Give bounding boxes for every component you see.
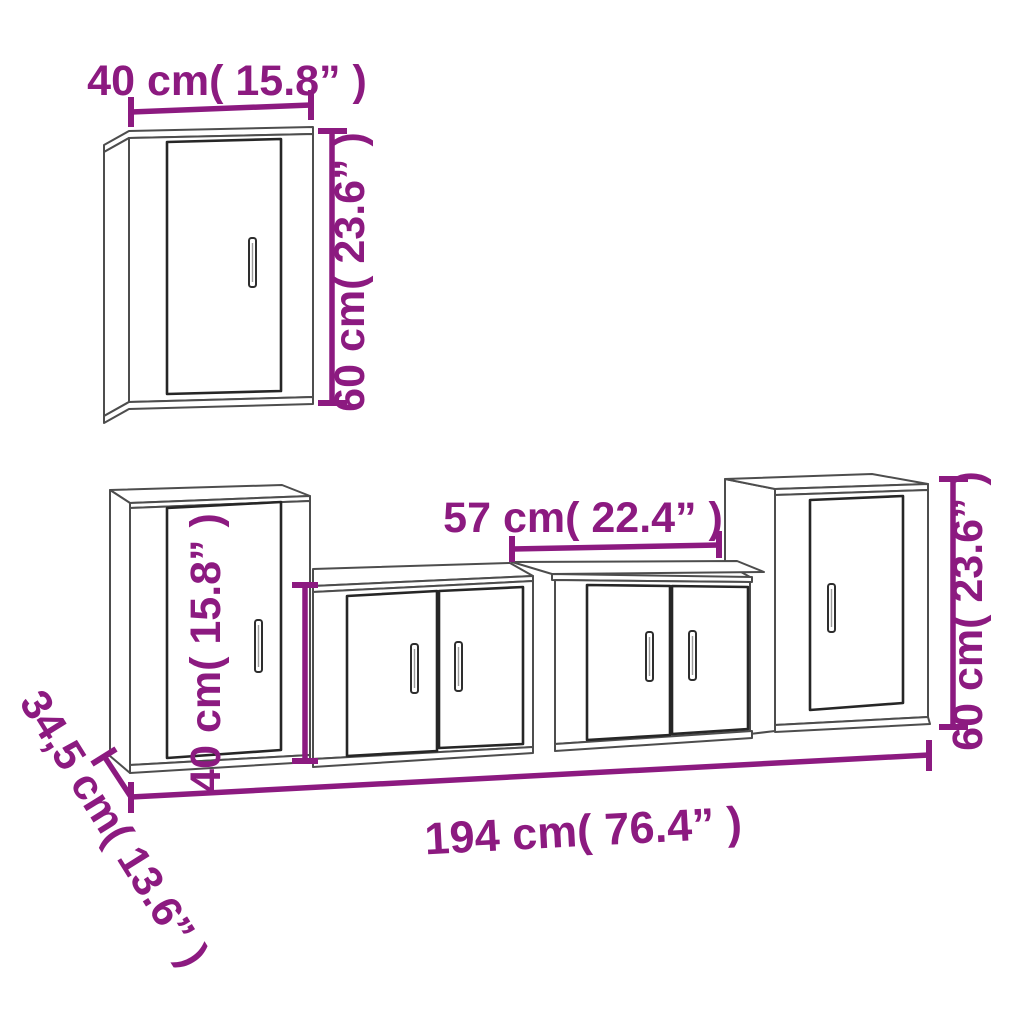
low2-door-right [672, 586, 748, 734]
low2-door-left [587, 585, 670, 740]
wall-cabinet-door [167, 139, 281, 394]
door-handle [411, 644, 418, 693]
dimension-low-cabinet-width: 57 cm( 22.4” ) [443, 494, 723, 562]
right-cabinet-height-label: 60 cm( 23.6” ) [944, 471, 992, 751]
diagram-canvas: 40 cm( 15.8” ) 60 cm( 23.6” ) 57 cm( 22.… [0, 0, 1024, 1024]
wall-cabinet-height-label: 60 cm( 23.6” ) [326, 132, 374, 412]
total-width-label: 194 cm( 76.4” ) [423, 797, 743, 865]
dimension-right-cabinet-height: 60 cm( 23.6” ) [939, 471, 992, 751]
tall-right-door [810, 496, 903, 710]
dimension-wall-cabinet-height: 60 cm( 23.6” ) [318, 131, 374, 412]
product-dimension-diagram: 40 cm( 15.8” ) 60 cm( 23.6” ) 57 cm( 22.… [0, 0, 1024, 1024]
tall-cabinet-right [725, 474, 930, 734]
low-cabinet-height-label: 40 cm( 15.8” ) [182, 513, 230, 793]
tall-left-left-side [110, 490, 130, 773]
dimension-wall-cabinet-width: 40 cm( 15.8” ) [87, 57, 367, 127]
low1-door-right [439, 587, 523, 748]
dimension-line [131, 105, 311, 112]
wall-cabinet-width-label: 40 cm( 15.8” ) [87, 57, 367, 105]
door-handle [689, 631, 696, 680]
wall-cabinet [104, 127, 313, 423]
low-cabinet-width-label: 57 cm( 22.4” ) [443, 494, 723, 542]
dimension-line [512, 545, 719, 549]
low-cabinet-2 [512, 561, 764, 751]
door-handle [828, 584, 835, 632]
door-handle [249, 238, 256, 287]
door-handle [455, 642, 462, 691]
low1-door-left [347, 591, 437, 756]
low2-top-face [512, 561, 764, 574]
wall-cabinet-bottom-panel [104, 397, 313, 423]
wall-cabinet-left-side [104, 138, 129, 416]
door-handle [255, 620, 262, 672]
low-cabinet-1 [313, 563, 533, 767]
door-handle [646, 632, 653, 681]
